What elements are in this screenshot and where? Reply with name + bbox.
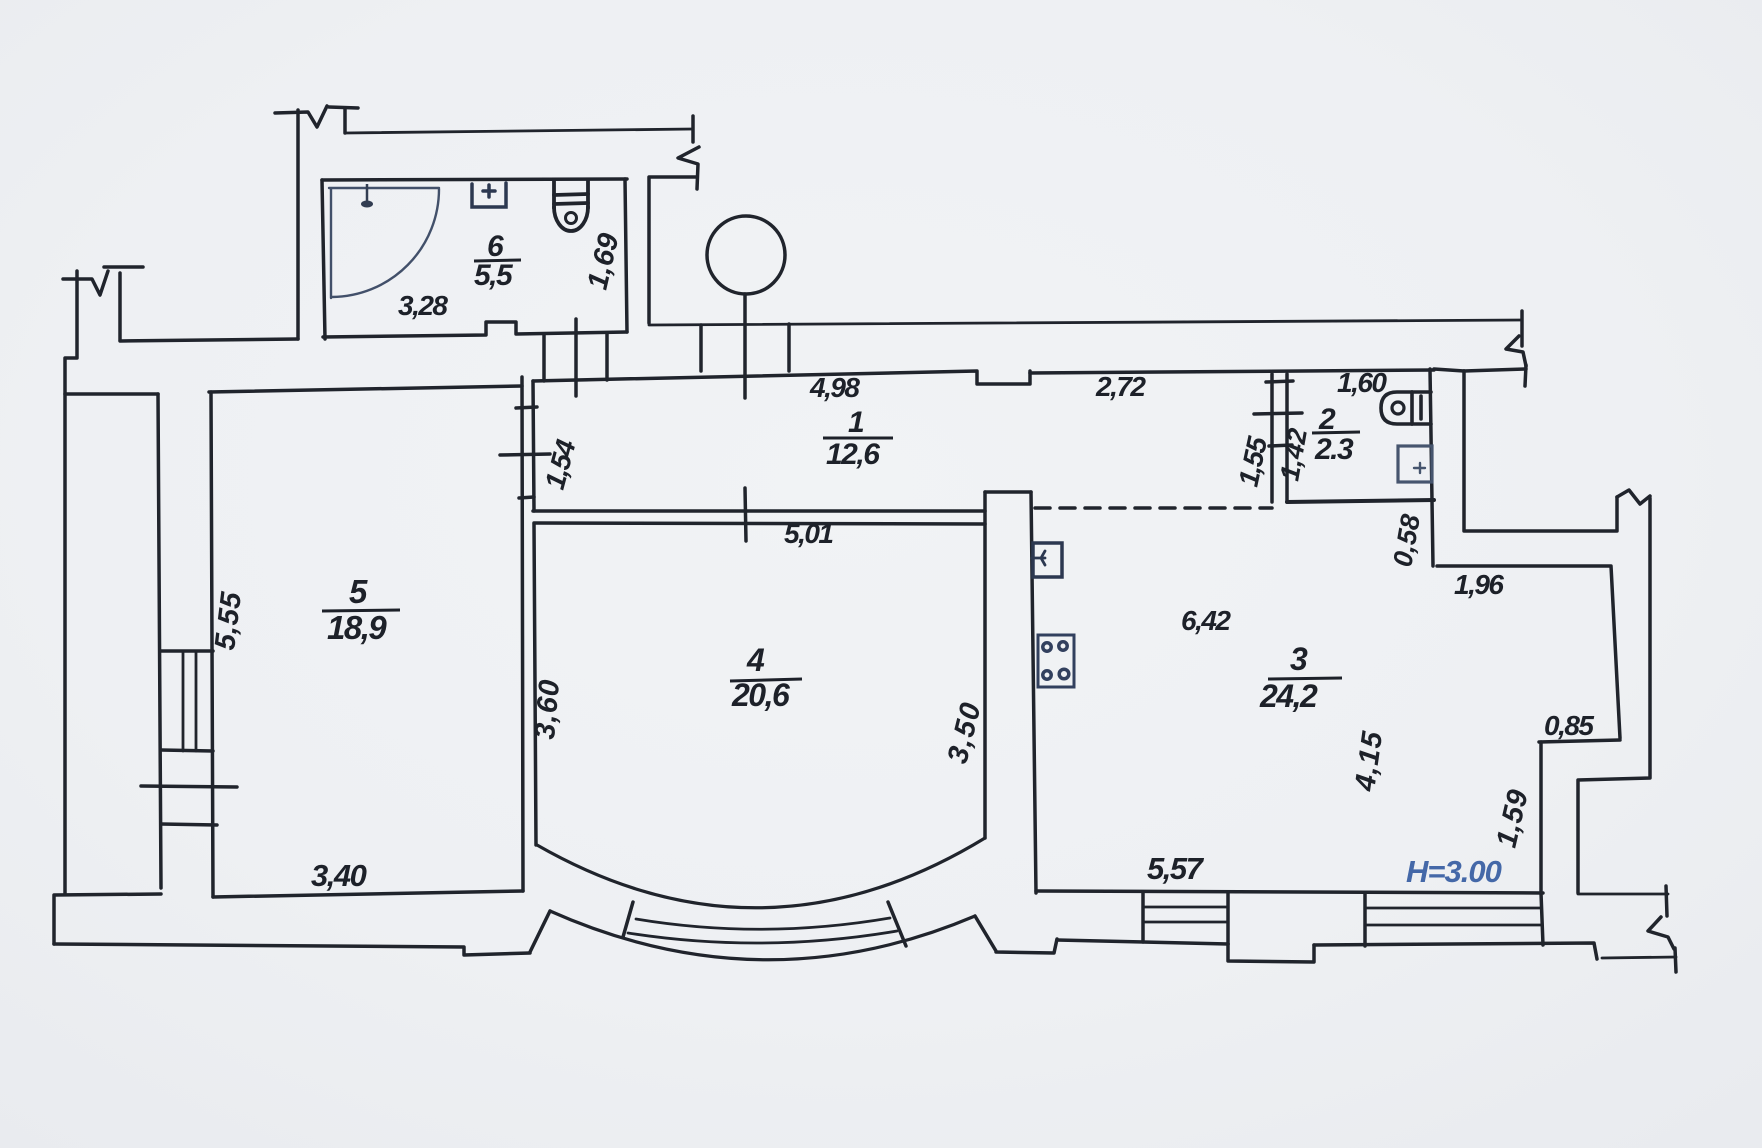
svg-text:24,2: 24,2 — [1259, 678, 1318, 714]
svg-text:18,9: 18,9 — [327, 609, 387, 646]
svg-text:4,98: 4,98 — [809, 372, 860, 403]
svg-text:3: 3 — [1290, 641, 1308, 677]
svg-text:5,01: 5,01 — [784, 518, 833, 549]
svg-text:5,57: 5,57 — [1147, 851, 1205, 886]
svg-text:12,6: 12,6 — [826, 438, 880, 471]
svg-text:H=3.00: H=3.00 — [1406, 854, 1502, 889]
svg-text:1,60: 1,60 — [1337, 367, 1387, 398]
svg-text:5: 5 — [349, 573, 368, 610]
svg-text:2: 2 — [1318, 403, 1336, 436]
svg-text:3,40: 3,40 — [311, 858, 367, 893]
svg-text:1,96: 1,96 — [1454, 569, 1504, 600]
svg-text:6,42: 6,42 — [1181, 605, 1231, 636]
svg-text:0,85: 0,85 — [1544, 710, 1594, 741]
svg-text:3,28: 3,28 — [398, 290, 448, 321]
svg-text:3,60: 3,60 — [529, 678, 566, 741]
svg-text:1: 1 — [848, 406, 864, 439]
svg-text:20,6: 20,6 — [731, 677, 790, 713]
svg-text:4: 4 — [746, 642, 765, 678]
svg-text:2,72: 2,72 — [1095, 371, 1146, 402]
svg-text:2.3: 2.3 — [1314, 433, 1354, 466]
svg-text:5,5: 5,5 — [474, 259, 514, 292]
